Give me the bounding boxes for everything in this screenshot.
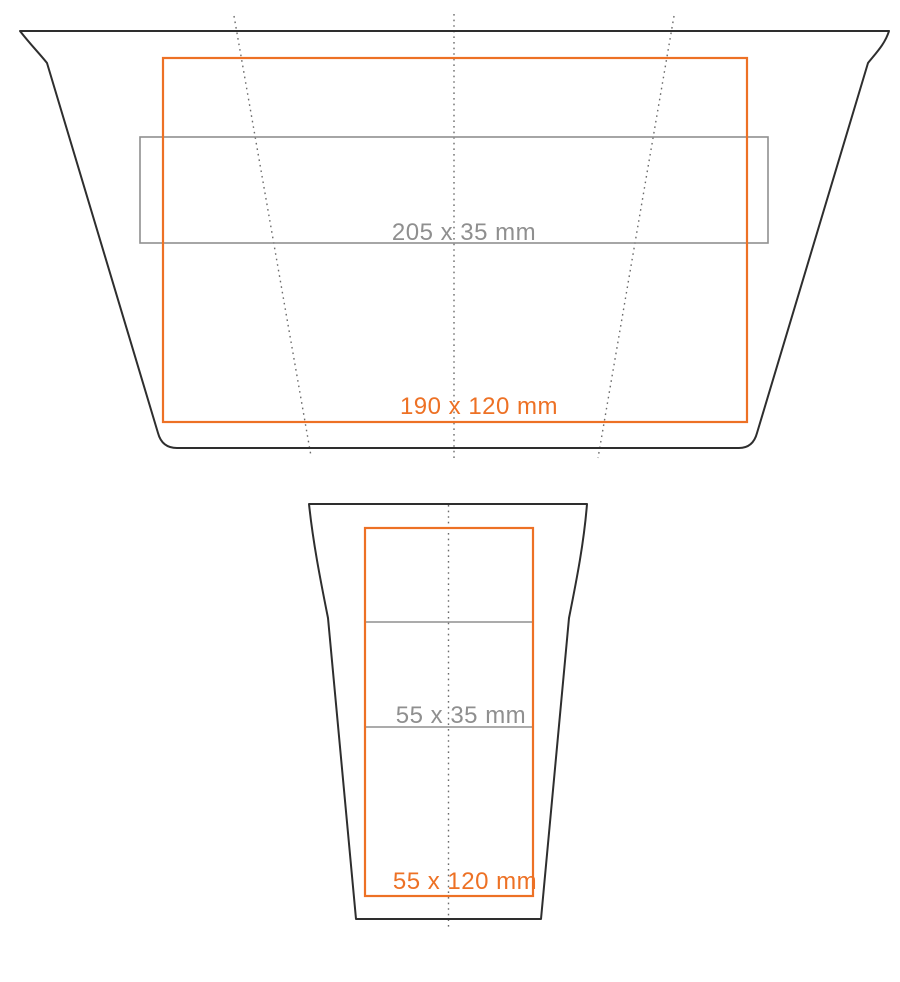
cup-front-view: 55 x 35 mm 55 x 120 mm xyxy=(309,504,587,928)
cup-flat-view: 205 x 35 mm 190 x 120 mm xyxy=(20,14,889,460)
cup-print-spec-svg: 205 x 35 mm 190 x 120 mm 55 x 35 mm 55 x… xyxy=(0,0,900,982)
flat-secondary-area-label-text: 205 x 35 mm xyxy=(392,219,536,246)
flat-print-area-label: 190 x 120 mm xyxy=(400,393,558,420)
front-secondary-area-label: 55 x 35 mm xyxy=(396,702,526,729)
front-secondary-area-label-text: 55 x 35 mm xyxy=(396,702,526,729)
front-print-area-label-text: 55 x 120 mm xyxy=(393,868,537,895)
print-area-diagram: 205 x 35 mm 190 x 120 mm 55 x 35 mm 55 x… xyxy=(0,0,900,982)
flat-left-guide-line xyxy=(234,16,311,456)
flat-right-guide-line xyxy=(598,16,674,458)
front-print-area-label: 55 x 120 mm xyxy=(393,868,537,895)
flat-print-area-label-text: 190 x 120 mm xyxy=(400,393,558,420)
flat-secondary-area-label: 205 x 35 mm xyxy=(392,219,536,246)
